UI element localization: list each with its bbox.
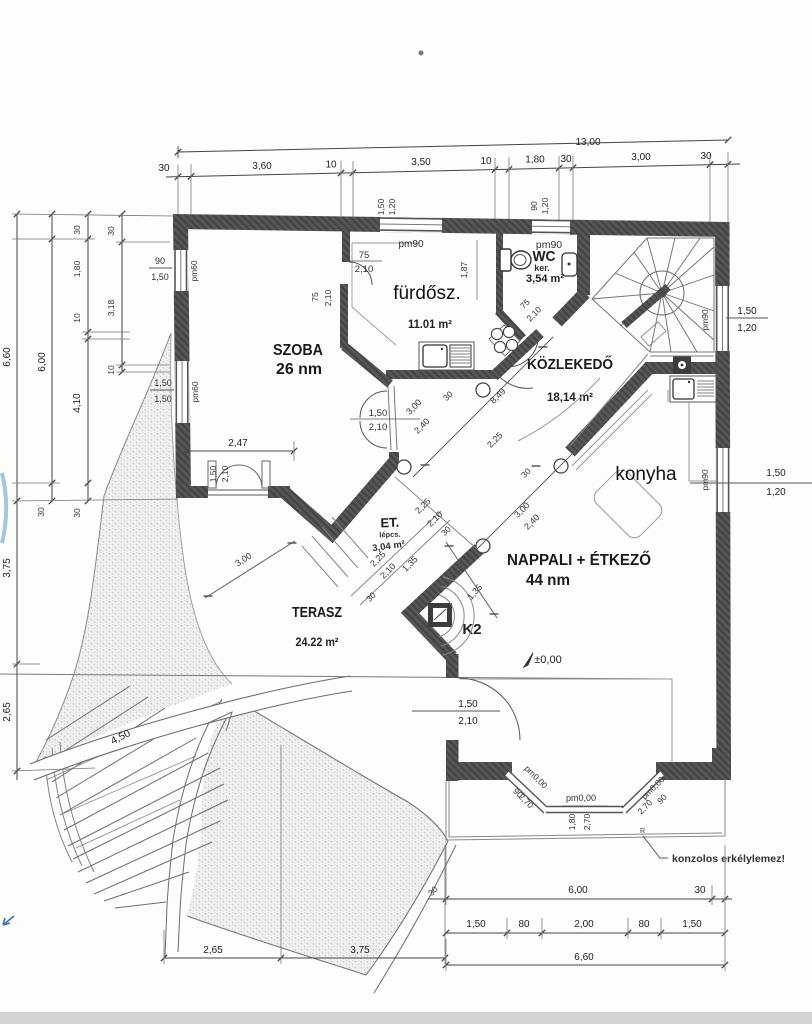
svg-text:2,70: 2,70 bbox=[582, 813, 592, 830]
svg-text:30: 30 bbox=[560, 154, 572, 165]
svg-text:pm90: pm90 bbox=[398, 239, 423, 250]
svg-text:24.22 m²: 24.22 m² bbox=[296, 635, 339, 649]
svg-text:2,65: 2,65 bbox=[2, 702, 13, 722]
svg-text:1,20: 1,20 bbox=[737, 323, 757, 334]
svg-text:3,75: 3,75 bbox=[2, 558, 13, 578]
svg-text:26 nm: 26 nm bbox=[276, 361, 322, 378]
svg-text:1,87: 1,87 bbox=[459, 261, 469, 278]
svg-text:3,75: 3,75 bbox=[350, 945, 370, 956]
svg-text:TERASZ: TERASZ bbox=[292, 605, 342, 621]
svg-text:1,50: 1,50 bbox=[369, 408, 388, 419]
svg-text:3,54 m²: 3,54 m² bbox=[526, 273, 564, 285]
svg-text:pm90: pm90 bbox=[700, 469, 710, 491]
svg-text:1,20: 1,20 bbox=[540, 197, 550, 214]
svg-text:30: 30 bbox=[694, 885, 706, 896]
svg-text:2,10: 2,10 bbox=[220, 465, 230, 482]
svg-text:1,50: 1,50 bbox=[154, 394, 172, 404]
svg-text:10: 10 bbox=[72, 313, 82, 323]
svg-text:75: 75 bbox=[310, 292, 320, 302]
svg-text:6,00: 6,00 bbox=[568, 885, 588, 896]
svg-text:1,50: 1,50 bbox=[458, 699, 478, 710]
svg-text:1,50: 1,50 bbox=[154, 378, 172, 388]
svg-text:90: 90 bbox=[529, 201, 539, 211]
svg-text:3,18: 3,18 bbox=[106, 299, 116, 316]
svg-text:90: 90 bbox=[155, 256, 165, 266]
svg-text:10: 10 bbox=[106, 365, 116, 375]
svg-text:30: 30 bbox=[158, 163, 170, 174]
svg-text:30: 30 bbox=[106, 226, 116, 236]
svg-text:3,00: 3,00 bbox=[631, 152, 651, 163]
svg-text:1,50: 1,50 bbox=[208, 465, 218, 482]
svg-text:1,50: 1,50 bbox=[737, 306, 757, 317]
svg-text:10: 10 bbox=[325, 159, 337, 170]
svg-text:±0,00: ±0,00 bbox=[534, 654, 561, 666]
svg-text:1,80: 1,80 bbox=[567, 813, 577, 830]
svg-text:4,10: 4,10 bbox=[72, 393, 83, 413]
svg-text:13,00: 13,00 bbox=[575, 137, 600, 148]
svg-text:pm60: pm60 bbox=[189, 260, 199, 282]
svg-text:6,60: 6,60 bbox=[574, 952, 594, 963]
svg-text:30: 30 bbox=[72, 508, 82, 518]
svg-text:75: 75 bbox=[359, 250, 370, 261]
svg-text:NAPPALI + ÉTKEZŐ: NAPPALI + ÉTKEZŐ bbox=[507, 551, 651, 569]
svg-text:2,10: 2,10 bbox=[323, 289, 333, 306]
svg-text:80: 80 bbox=[518, 919, 530, 930]
svg-text:ET.: ET. bbox=[380, 515, 399, 531]
svg-text:konzolos erkélylemez!: konzolos erkélylemez! bbox=[672, 854, 785, 865]
svg-text:2,10: 2,10 bbox=[458, 716, 478, 727]
svg-text:3,50: 3,50 bbox=[411, 157, 431, 168]
svg-text:2,65: 2,65 bbox=[203, 945, 223, 956]
svg-text:2,47: 2,47 bbox=[228, 438, 248, 449]
svg-text:fürdősz.: fürdősz. bbox=[393, 283, 461, 304]
svg-text:30: 30 bbox=[36, 507, 46, 517]
svg-text:6,00: 6,00 bbox=[37, 352, 48, 372]
svg-text:2,00: 2,00 bbox=[574, 919, 594, 930]
svg-text:30: 30 bbox=[72, 225, 82, 235]
svg-text:R: R bbox=[640, 828, 645, 835]
svg-text:11.01 m²: 11.01 m² bbox=[408, 319, 452, 331]
svg-text:1,20: 1,20 bbox=[766, 487, 786, 498]
svg-text:1,50: 1,50 bbox=[376, 198, 386, 215]
svg-text:konyha: konyha bbox=[615, 464, 677, 485]
svg-text:2,10: 2,10 bbox=[355, 264, 374, 275]
svg-text:1,50: 1,50 bbox=[682, 919, 702, 930]
svg-text:lépcs.: lépcs. bbox=[379, 530, 401, 540]
svg-text:1,50: 1,50 bbox=[466, 919, 486, 930]
svg-text:1,80: 1,80 bbox=[72, 260, 82, 277]
svg-text:1,20: 1,20 bbox=[387, 198, 397, 215]
svg-text:2,10: 2,10 bbox=[369, 422, 388, 433]
svg-text:6,60: 6,60 bbox=[2, 347, 13, 367]
svg-text:1,80: 1,80 bbox=[525, 155, 545, 166]
svg-text:pm60: pm60 bbox=[190, 381, 200, 403]
svg-text:KÖZLEKEDŐ: KÖZLEKEDŐ bbox=[527, 355, 613, 373]
svg-text:pm90: pm90 bbox=[700, 309, 710, 331]
svg-text:pm0,00: pm0,00 bbox=[566, 793, 596, 803]
svg-text:1,50: 1,50 bbox=[151, 272, 169, 282]
svg-text:SZOBA: SZOBA bbox=[273, 342, 323, 359]
svg-text:1,50: 1,50 bbox=[766, 468, 786, 479]
svg-text:44 nm: 44 nm bbox=[526, 572, 570, 589]
svg-text:10: 10 bbox=[480, 156, 492, 167]
svg-text:80: 80 bbox=[638, 919, 650, 930]
svg-text:3,60: 3,60 bbox=[252, 161, 272, 172]
svg-text:ker.: ker. bbox=[534, 263, 550, 273]
